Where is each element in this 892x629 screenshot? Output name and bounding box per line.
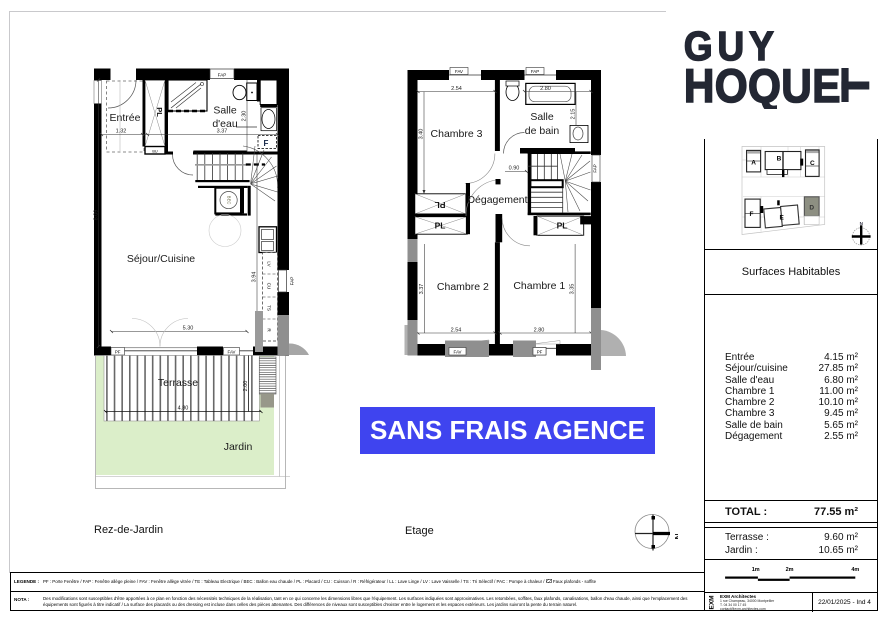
svg-text:FAV: FAV [454,350,462,355]
svg-text:PF: PF [537,350,543,355]
